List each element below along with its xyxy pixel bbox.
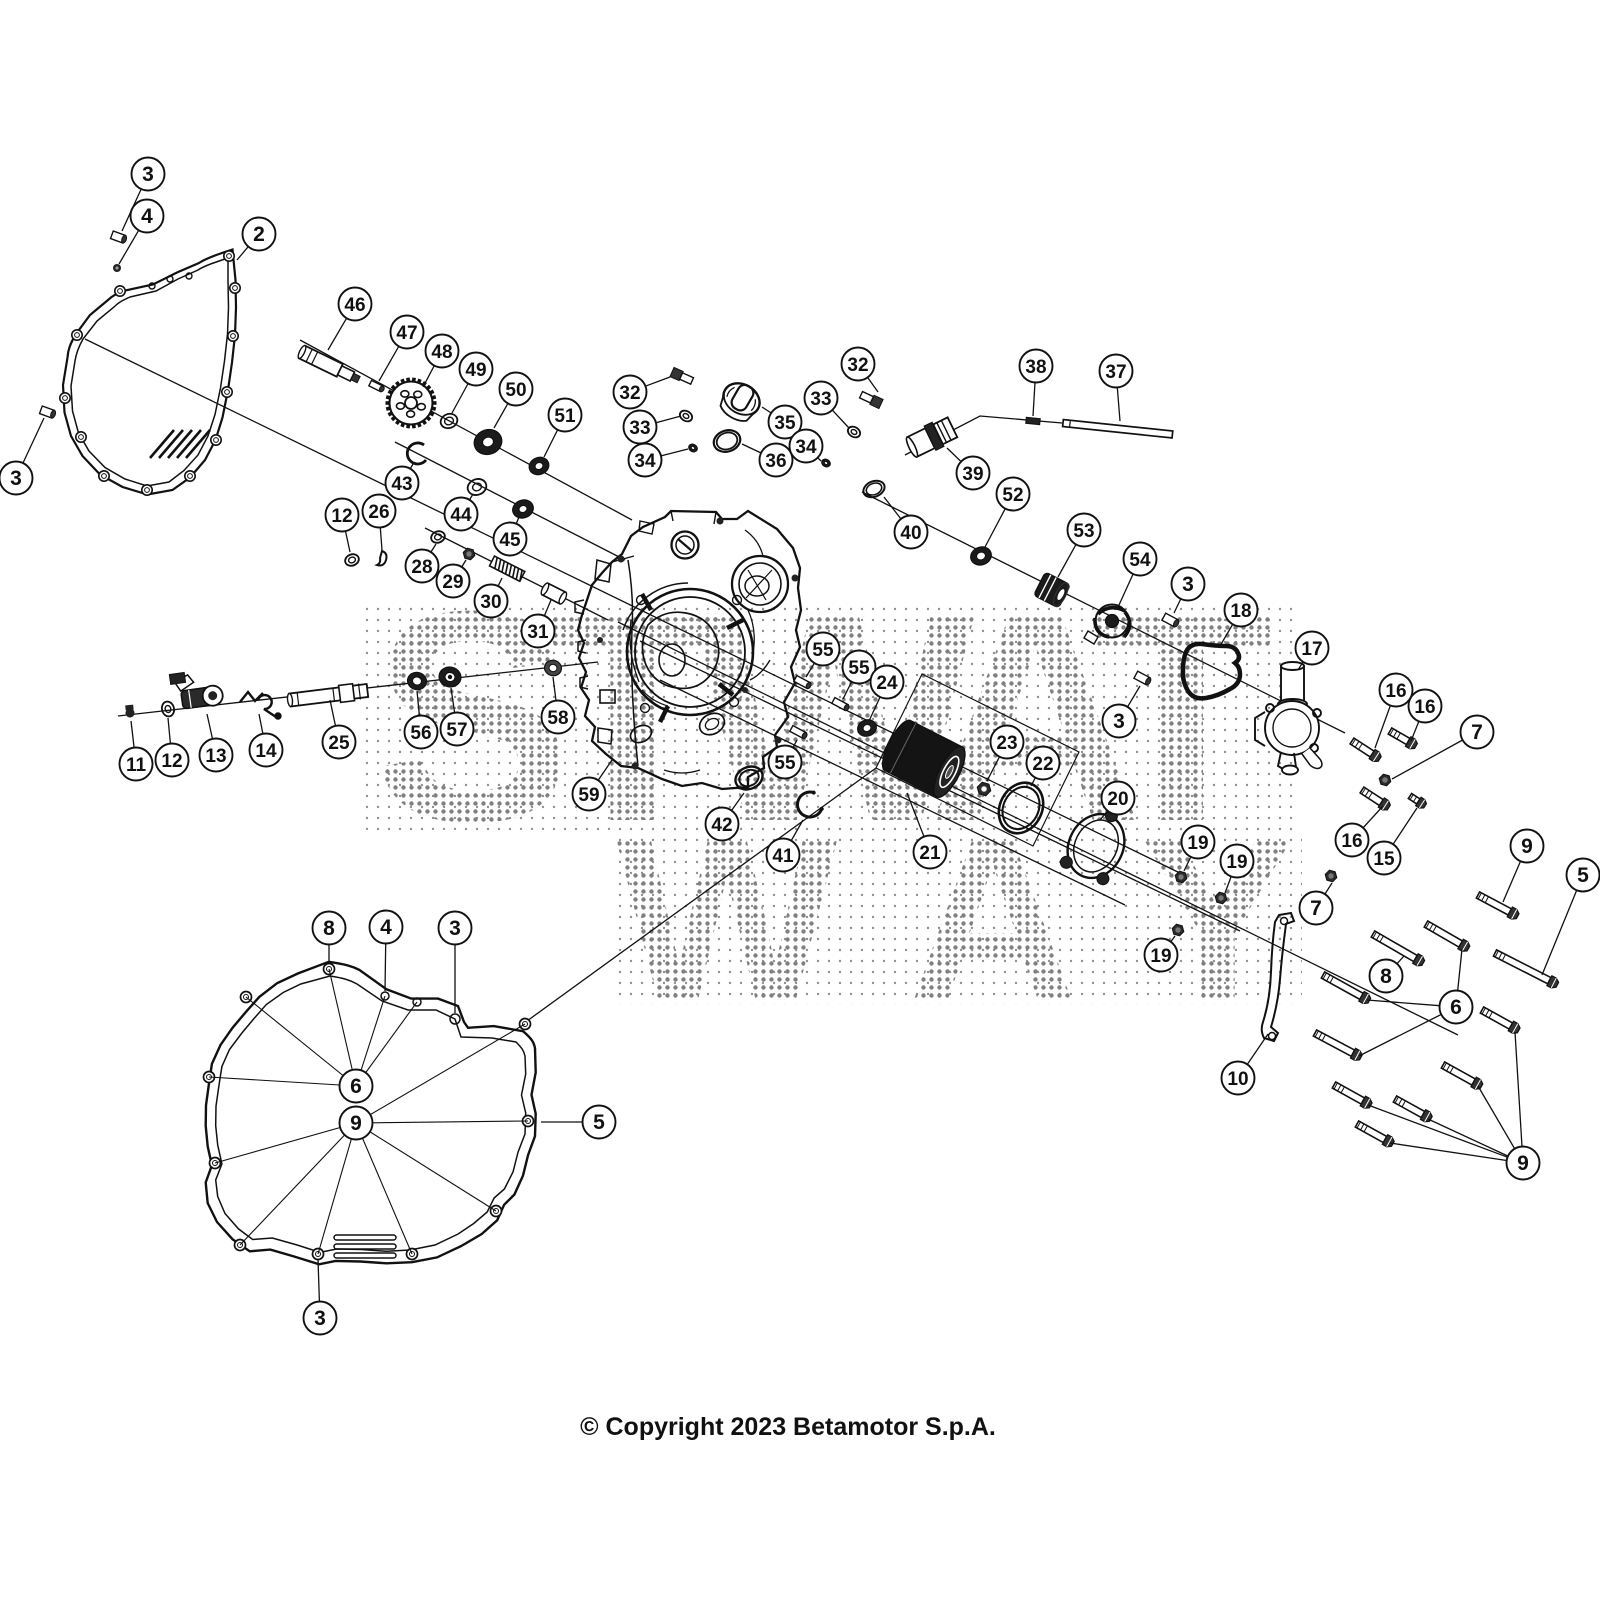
svg-text:35: 35 — [774, 413, 796, 434]
svg-text:24: 24 — [876, 673, 898, 694]
svg-text:43: 43 — [391, 474, 412, 495]
svg-text:© Copyright 2023 Betamotor S.p: © Copyright 2023 Betamotor S.p.A. — [580, 1413, 996, 1441]
svg-text:7: 7 — [1471, 721, 1483, 744]
svg-text:38: 38 — [1025, 357, 1046, 378]
svg-text:58: 58 — [547, 708, 568, 729]
svg-text:22: 22 — [1032, 754, 1053, 775]
svg-text:11: 11 — [126, 755, 147, 776]
svg-text:50: 50 — [505, 380, 526, 401]
svg-text:36: 36 — [765, 451, 786, 472]
svg-text:32: 32 — [847, 355, 868, 376]
svg-text:12: 12 — [331, 506, 352, 527]
svg-text:3: 3 — [1182, 573, 1194, 596]
svg-text:47: 47 — [396, 323, 417, 344]
svg-text:5: 5 — [593, 1111, 605, 1134]
svg-text:48: 48 — [431, 342, 452, 363]
svg-text:9: 9 — [1517, 1152, 1529, 1175]
svg-text:6: 6 — [1450, 996, 1462, 1019]
svg-text:55: 55 — [812, 640, 834, 661]
svg-text:52: 52 — [1002, 485, 1023, 506]
svg-text:49: 49 — [465, 360, 486, 381]
svg-text:39: 39 — [962, 464, 983, 485]
svg-text:3: 3 — [142, 163, 154, 186]
svg-text:55: 55 — [774, 753, 796, 774]
svg-text:16: 16 — [1341, 831, 1362, 852]
svg-text:19: 19 — [1226, 852, 1247, 873]
svg-text:23: 23 — [996, 733, 1017, 754]
svg-text:45: 45 — [499, 530, 521, 551]
svg-text:34: 34 — [634, 451, 656, 472]
svg-text:3: 3 — [1113, 710, 1125, 733]
svg-text:53: 53 — [1073, 521, 1094, 542]
svg-text:56: 56 — [410, 723, 431, 744]
svg-text:10: 10 — [1227, 1069, 1248, 1090]
svg-text:18: 18 — [1230, 601, 1251, 622]
svg-text:4: 4 — [141, 205, 153, 228]
svg-text:55: 55 — [848, 658, 870, 679]
svg-text:28: 28 — [411, 557, 432, 578]
svg-text:26: 26 — [368, 502, 389, 523]
svg-text:46: 46 — [344, 295, 365, 316]
svg-text:15: 15 — [1373, 849, 1395, 870]
svg-text:32: 32 — [619, 383, 640, 404]
svg-text:3: 3 — [314, 1307, 326, 1330]
svg-text:3: 3 — [10, 467, 22, 490]
svg-text:17: 17 — [1301, 639, 1322, 660]
svg-text:16: 16 — [1385, 681, 1406, 702]
svg-text:7: 7 — [1310, 897, 1322, 920]
svg-text:20: 20 — [1107, 789, 1128, 810]
svg-text:51: 51 — [554, 406, 576, 427]
svg-text:9: 9 — [1521, 835, 1533, 858]
svg-text:19: 19 — [1187, 833, 1208, 854]
svg-text:37: 37 — [1105, 362, 1126, 383]
svg-text:34: 34 — [795, 437, 817, 458]
svg-text:29: 29 — [442, 572, 463, 593]
svg-text:25: 25 — [328, 733, 350, 754]
svg-text:8: 8 — [323, 917, 335, 940]
svg-text:6: 6 — [350, 1075, 362, 1098]
svg-text:3: 3 — [449, 917, 461, 940]
svg-text:2: 2 — [253, 223, 265, 246]
svg-text:42: 42 — [711, 815, 732, 836]
svg-text:33: 33 — [810, 389, 831, 410]
svg-text:21: 21 — [919, 843, 941, 864]
svg-text:57: 57 — [446, 720, 467, 741]
svg-text:40: 40 — [900, 523, 921, 544]
svg-text:4: 4 — [380, 916, 392, 939]
svg-text:13: 13 — [205, 746, 226, 767]
svg-text:30: 30 — [480, 592, 501, 613]
svg-text:9: 9 — [350, 1112, 362, 1135]
svg-text:8: 8 — [1380, 965, 1392, 988]
svg-text:44: 44 — [450, 505, 472, 526]
svg-text:14: 14 — [255, 741, 277, 762]
svg-text:59: 59 — [578, 785, 599, 806]
svg-text:54: 54 — [1129, 550, 1151, 571]
svg-text:33: 33 — [629, 418, 650, 439]
svg-text:41: 41 — [772, 846, 794, 867]
svg-text:31: 31 — [527, 622, 549, 643]
svg-text:12: 12 — [161, 751, 182, 772]
svg-text:16: 16 — [1414, 697, 1435, 718]
svg-text:19: 19 — [1150, 946, 1171, 967]
svg-text:5: 5 — [1577, 864, 1589, 887]
